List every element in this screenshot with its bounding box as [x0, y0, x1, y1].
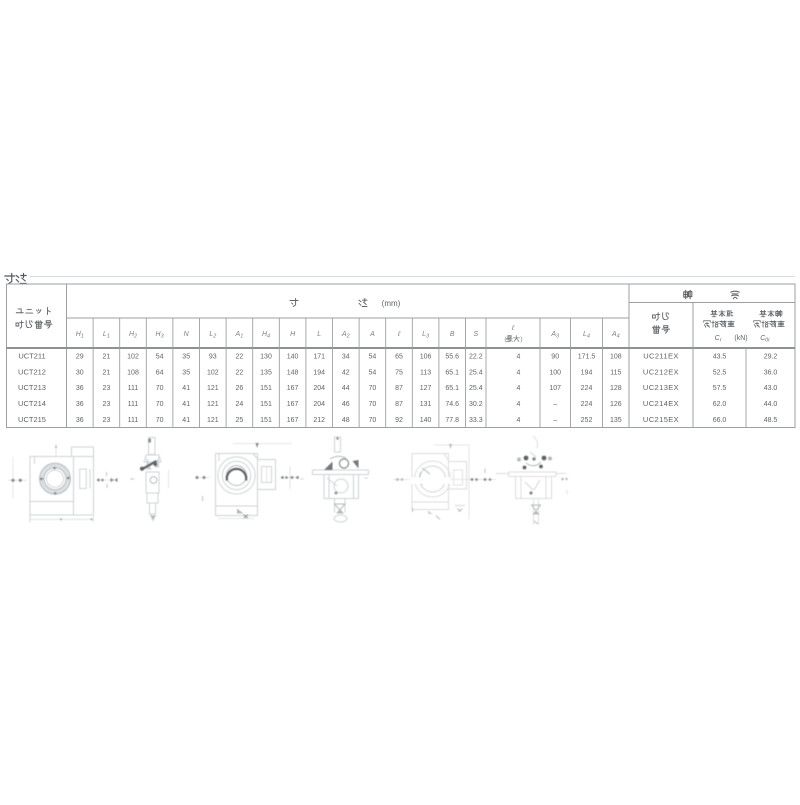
- svg-text:115: 115: [610, 369, 621, 376]
- svg-text:(mm): (mm): [382, 299, 401, 308]
- svg-text:–: –: [553, 401, 557, 408]
- svg-text:43.5: 43.5: [713, 353, 727, 360]
- svg-text:41: 41: [182, 417, 190, 424]
- svg-text:54: 54: [156, 353, 164, 360]
- svg-text:4: 4: [517, 369, 521, 376]
- svg-text:113: 113: [420, 369, 431, 376]
- svg-text:65.1: 65.1: [445, 369, 459, 376]
- svg-text:128: 128: [610, 385, 622, 392]
- svg-text:224: 224: [581, 385, 593, 392]
- svg-text:UC212EX: UC212EX: [643, 367, 679, 376]
- svg-text:108: 108: [610, 353, 622, 360]
- svg-text:41: 41: [182, 385, 190, 392]
- svg-text:171.5: 171.5: [578, 353, 596, 360]
- svg-text:252: 252: [581, 417, 593, 424]
- svg-text:171: 171: [313, 353, 325, 360]
- svg-text:130: 130: [260, 353, 272, 360]
- svg-text:34: 34: [342, 353, 350, 360]
- svg-text:70: 70: [369, 417, 377, 424]
- svg-text:46: 46: [342, 401, 350, 408]
- svg-text:UC211EX: UC211EX: [643, 351, 679, 360]
- svg-text:25.4: 25.4: [469, 385, 483, 392]
- svg-text:4: 4: [517, 417, 521, 424]
- svg-text:36: 36: [76, 401, 84, 408]
- svg-text:–: –: [553, 417, 557, 424]
- svg-text:151: 151: [260, 401, 272, 408]
- svg-text:23: 23: [103, 417, 111, 424]
- svg-text:S: S: [473, 331, 478, 338]
- svg-text:87: 87: [395, 401, 403, 408]
- svg-text:151: 151: [260, 417, 272, 424]
- svg-text:36.0: 36.0: [764, 369, 778, 376]
- svg-text:224: 224: [581, 401, 593, 408]
- svg-text:121: 121: [207, 417, 219, 424]
- svg-text:30.2: 30.2: [469, 401, 483, 408]
- svg-text:23: 23: [103, 401, 111, 408]
- svg-text:35: 35: [182, 353, 190, 360]
- svg-text:UCT211: UCT211: [18, 351, 45, 360]
- svg-text:108: 108: [127, 369, 139, 376]
- svg-text:92: 92: [395, 417, 403, 424]
- svg-text:106: 106: [420, 353, 432, 360]
- svg-text:121: 121: [207, 401, 219, 408]
- svg-text:194: 194: [313, 369, 325, 376]
- svg-text:36: 36: [76, 417, 84, 424]
- svg-text:74.6: 74.6: [445, 401, 459, 408]
- svg-text:): ): [520, 336, 522, 343]
- svg-text:148: 148: [287, 369, 299, 376]
- svg-text:B: B: [450, 331, 455, 338]
- svg-text:111: 111: [128, 385, 139, 392]
- svg-text:22: 22: [236, 369, 244, 376]
- svg-text:75: 75: [395, 369, 403, 376]
- svg-text:102: 102: [127, 353, 139, 360]
- svg-text:111: 111: [128, 401, 139, 408]
- svg-text:UCT212: UCT212: [18, 367, 46, 376]
- svg-text:70: 70: [369, 401, 377, 408]
- svg-text:UC213EX: UC213EX: [643, 383, 679, 392]
- svg-text:4: 4: [517, 401, 521, 408]
- svg-text:44.0: 44.0: [764, 401, 778, 408]
- svg-text:48: 48: [342, 417, 350, 424]
- svg-text:UCT215: UCT215: [18, 415, 46, 424]
- svg-text:42: 42: [342, 369, 350, 376]
- svg-text:65.1: 65.1: [445, 385, 459, 392]
- svg-text:UC214EX: UC214EX: [643, 399, 679, 408]
- svg-text:UC215EX: UC215EX: [643, 415, 679, 424]
- svg-text:25.4: 25.4: [469, 369, 483, 376]
- svg-text:87: 87: [395, 385, 403, 392]
- svg-text:29: 29: [76, 353, 84, 360]
- svg-text:24: 24: [236, 401, 244, 408]
- svg-text:48.5: 48.5: [764, 417, 778, 424]
- svg-text:107: 107: [549, 385, 561, 392]
- svg-text:135: 135: [610, 417, 622, 424]
- svg-text:65: 65: [395, 353, 403, 360]
- svg-text:204: 204: [313, 385, 325, 392]
- svg-text:111: 111: [128, 417, 139, 424]
- svg-text:70: 70: [369, 385, 377, 392]
- svg-text:121: 121: [207, 385, 219, 392]
- svg-text:30: 30: [76, 369, 84, 376]
- svg-text:(kN): (kN): [734, 335, 747, 342]
- svg-text:126: 126: [610, 401, 622, 408]
- svg-text:L: L: [317, 331, 321, 338]
- svg-text:140: 140: [420, 417, 432, 424]
- svg-text:36: 36: [76, 385, 84, 392]
- svg-text:131: 131: [420, 401, 432, 408]
- svg-text:64: 64: [156, 369, 164, 376]
- svg-text:100: 100: [549, 369, 561, 376]
- svg-text:UCT213: UCT213: [18, 383, 46, 392]
- svg-text:93: 93: [209, 353, 217, 360]
- svg-text:77.8: 77.8: [445, 417, 459, 424]
- svg-text:33.3: 33.3: [469, 417, 483, 424]
- svg-text:57.5: 57.5: [713, 385, 727, 392]
- svg-text:167: 167: [287, 385, 299, 392]
- svg-text:41: 41: [182, 401, 190, 408]
- svg-text:26: 26: [236, 385, 244, 392]
- svg-text:52.5: 52.5: [713, 369, 727, 376]
- svg-text:167: 167: [287, 401, 299, 408]
- svg-text:29.2: 29.2: [764, 353, 778, 360]
- svg-text:54: 54: [369, 353, 377, 360]
- svg-text:25: 25: [236, 417, 244, 424]
- svg-text:194: 194: [581, 369, 593, 376]
- svg-text:62.0: 62.0: [713, 401, 727, 408]
- svg-text:35: 35: [182, 369, 190, 376]
- svg-text:UCT214: UCT214: [18, 399, 46, 408]
- svg-text:204: 204: [313, 401, 325, 408]
- svg-text:167: 167: [287, 417, 299, 424]
- svg-text:22.2: 22.2: [469, 353, 483, 360]
- svg-text:A: A: [369, 331, 375, 338]
- svg-text:70: 70: [156, 385, 164, 392]
- svg-text:135: 135: [260, 369, 272, 376]
- svg-text:21: 21: [103, 353, 111, 360]
- svg-text:55.6: 55.6: [445, 353, 459, 360]
- svg-text:4: 4: [517, 353, 521, 360]
- svg-text:70: 70: [156, 417, 164, 424]
- svg-text:102: 102: [207, 369, 219, 376]
- svg-text:70: 70: [156, 401, 164, 408]
- svg-text:22: 22: [236, 353, 244, 360]
- svg-text:66.0: 66.0: [713, 417, 727, 424]
- svg-text:212: 212: [313, 417, 325, 424]
- svg-text:43.0: 43.0: [764, 385, 778, 392]
- svg-text:44: 44: [342, 385, 350, 392]
- svg-text:90: 90: [551, 353, 559, 360]
- svg-text:54: 54: [369, 369, 377, 376]
- svg-text:4: 4: [517, 385, 521, 392]
- svg-text:21: 21: [103, 369, 111, 376]
- svg-text:151: 151: [260, 385, 272, 392]
- svg-text:23: 23: [103, 385, 111, 392]
- svg-text:140: 140: [287, 353, 299, 360]
- svg-text:127: 127: [420, 385, 432, 392]
